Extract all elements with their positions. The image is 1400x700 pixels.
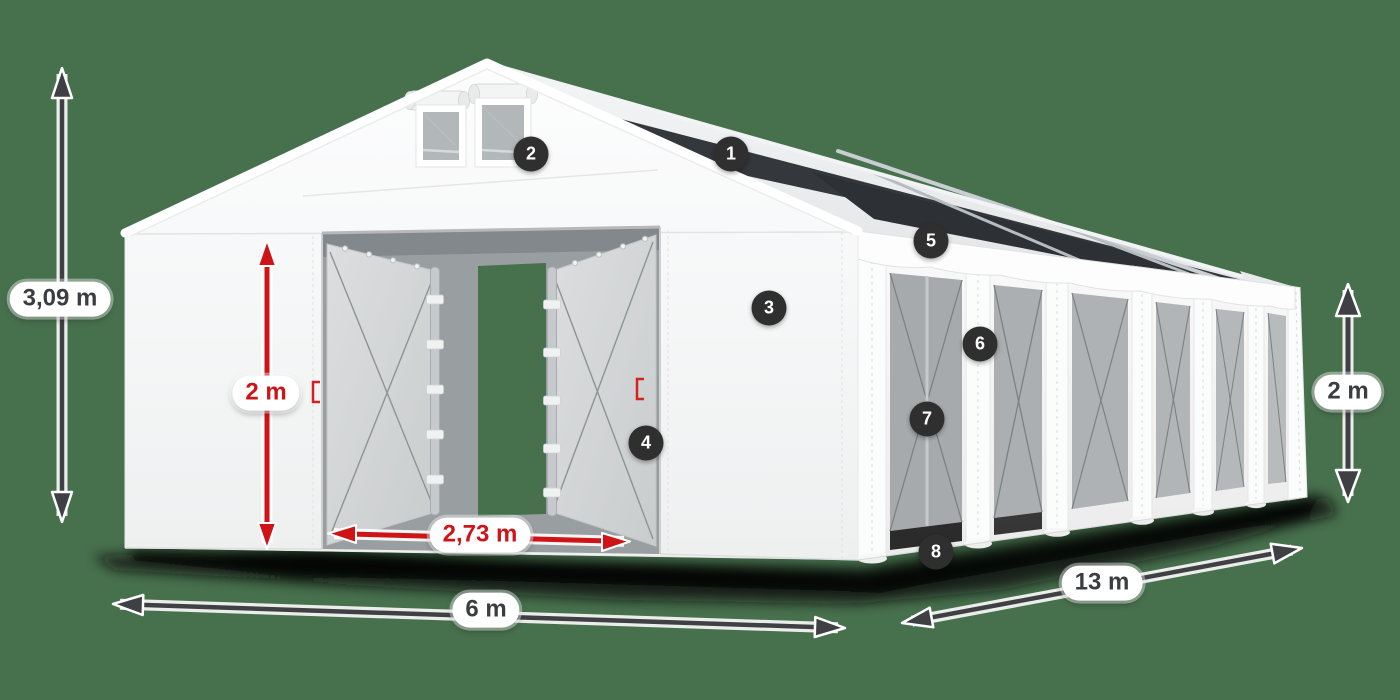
callout-8-ground-skirt[interactable]: 8 — [919, 535, 954, 570]
total-height-label: 3,09 m — [10, 282, 111, 317]
vent-window-1 — [416, 105, 466, 167]
front-door-opening — [313, 227, 660, 554]
side-window-2 — [1156, 302, 1190, 498]
side-window-4 — [1268, 313, 1286, 484]
side-window-1 — [1072, 293, 1128, 509]
callout-4-door[interactable]: 4 — [629, 426, 664, 461]
callout-5-valance[interactable]: 5 — [914, 224, 949, 259]
callout-3-front-wall[interactable]: 3 — [752, 291, 787, 326]
callout-1-roof[interactable]: 1 — [714, 137, 749, 172]
opening-through-view — [478, 263, 546, 516]
callout-6-side-post[interactable]: 6 — [963, 327, 998, 362]
callout-7-side-opening[interactable]: 7 — [910, 402, 945, 437]
door-width-label: 2,73 m — [430, 518, 531, 553]
door-height-label: 2 m — [232, 376, 299, 411]
side-length-label: 13 m — [1062, 566, 1143, 601]
tent-illustration — [0, 0, 1400, 700]
left-door-leaf — [327, 244, 444, 545]
side-window-3 — [1216, 309, 1244, 491]
callout-2-vent-window[interactable]: 2 — [514, 137, 549, 172]
right-door-leaf — [544, 235, 657, 546]
tent-dimension-diagram: 3,09 m 2 m 2,73 m 6 m 13 m 2 m 1 2 3 4 5… — [0, 0, 1400, 700]
side-opening-2 — [994, 285, 1042, 535]
front-width-label: 6 m — [452, 593, 519, 628]
side-height-label: 2 m — [1314, 375, 1381, 410]
